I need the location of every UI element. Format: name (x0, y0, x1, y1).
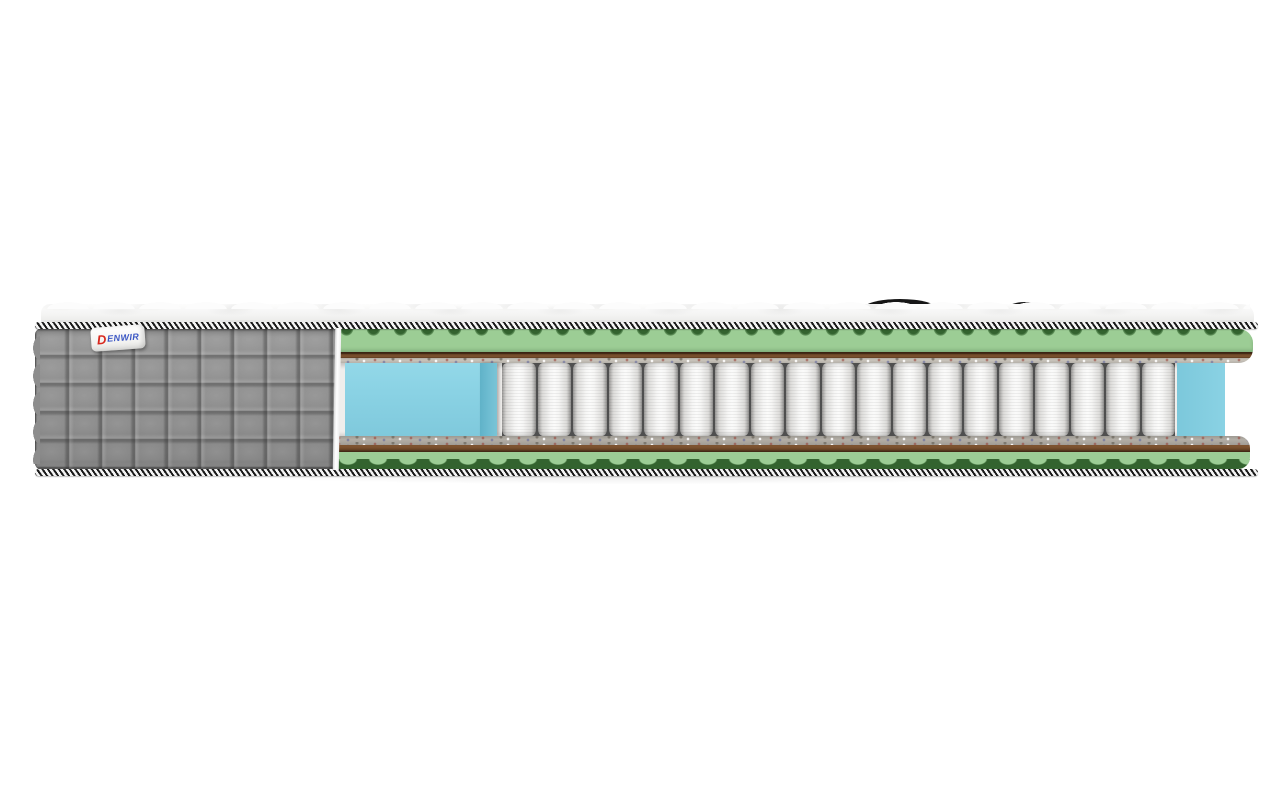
side-support-foam-left (345, 363, 497, 436)
pocket-spring (680, 363, 714, 436)
pocket-spring (715, 363, 749, 436)
wave-foam-layer-top (333, 329, 1253, 352)
pocket-spring (538, 363, 572, 436)
pocket-spring (857, 363, 891, 436)
side-support-foam-right (1177, 363, 1225, 436)
pocket-spring (502, 363, 536, 436)
foam-side-face (480, 363, 497, 436)
pocket-spring (1071, 363, 1105, 436)
edge-tape-bottom (35, 469, 1258, 476)
pocket-spring (999, 363, 1033, 436)
product-image-stage: D ENWIR (0, 0, 1280, 800)
pocket-spring (1035, 363, 1069, 436)
pocket-spring (573, 363, 607, 436)
pocket-spring (893, 363, 927, 436)
coir-layer-bottom (333, 445, 1250, 452)
pocket-spring (928, 363, 962, 436)
pocket-spring (751, 363, 785, 436)
edge-tape-top (35, 322, 1258, 329)
pocket-spring (609, 363, 643, 436)
brand-logo-d: D (96, 332, 106, 346)
top-comfort-layers (333, 329, 1253, 363)
quilted-side-cover (35, 328, 337, 470)
pocket-spring (786, 363, 820, 436)
spring-core (333, 363, 1225, 436)
foam-front-face (345, 363, 480, 436)
quilted-top-panel-edge (41, 304, 1254, 323)
pocket-spring (1106, 363, 1140, 436)
foam-front-face (1177, 363, 1225, 436)
mattress-cross-section: D ENWIR (35, 302, 1258, 476)
wave-foam-layer-bottom (333, 452, 1250, 469)
brand-logo-text: ENWIR (107, 332, 140, 343)
bottom-comfort-layers (333, 436, 1250, 469)
felt-layer-bottom (333, 436, 1250, 445)
pocket-spring (822, 363, 856, 436)
pocket-spring (644, 363, 678, 436)
ground-shadow (55, 474, 1240, 488)
pocket-spring (964, 363, 998, 436)
pocket-spring (1142, 363, 1176, 436)
pocket-springs-row (502, 363, 1175, 436)
brand-label: D ENWIR (90, 324, 146, 352)
